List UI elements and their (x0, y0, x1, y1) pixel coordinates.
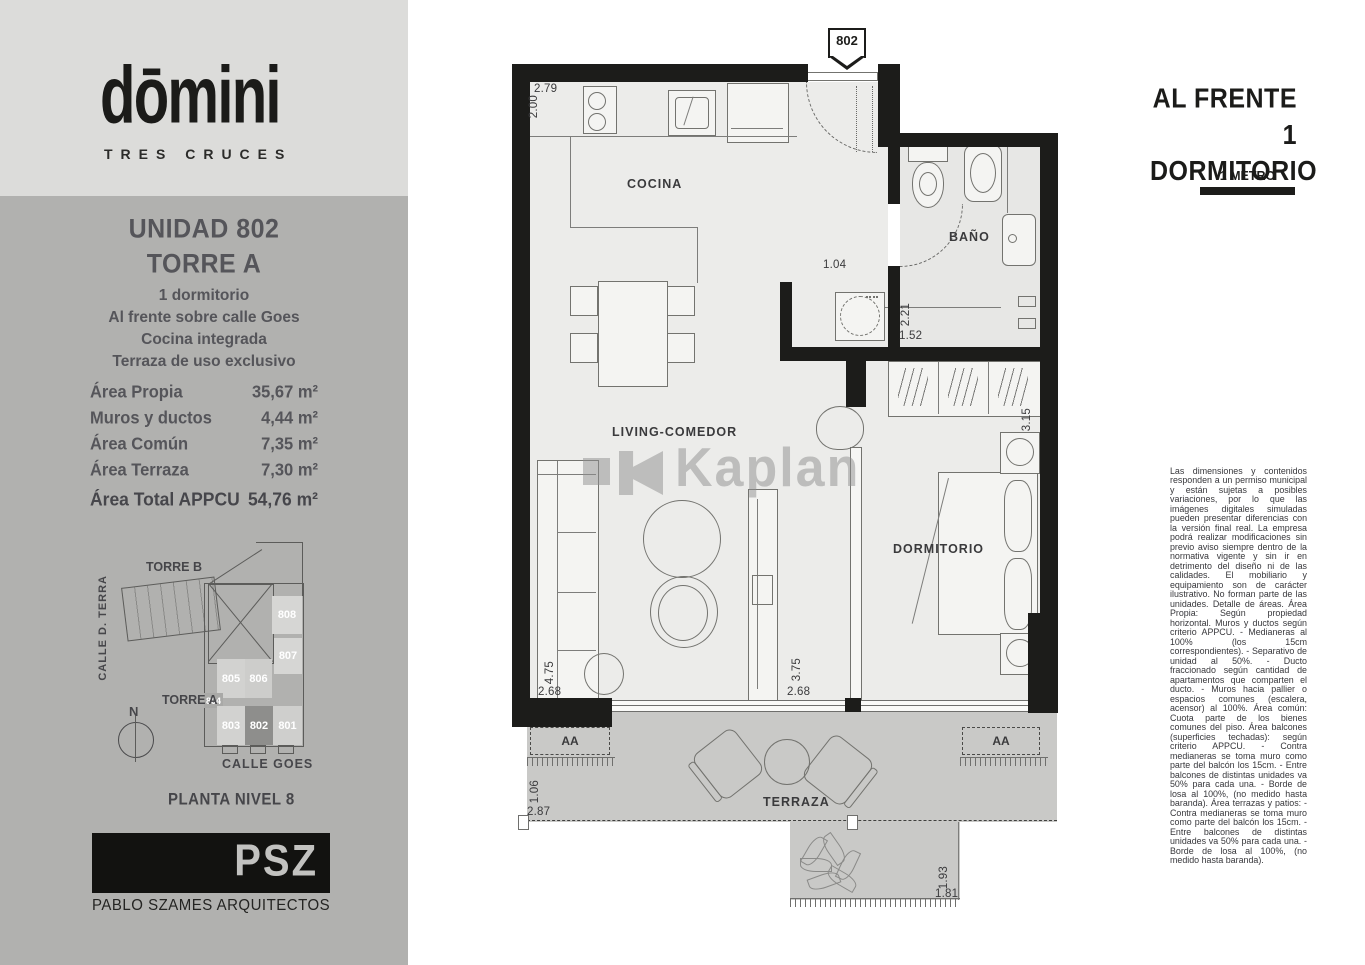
counter-line (570, 227, 698, 228)
sofa-line (558, 532, 596, 533)
room-label-terraza: TERRAZA (763, 795, 830, 810)
fridge-line (731, 128, 783, 129)
room-label-bano: BAÑO (949, 230, 990, 245)
street-bottom-label: CALLE GOES (222, 757, 313, 771)
street-left-label: CALLE D. TERRA (97, 575, 109, 681)
siteplan-caption: PLANTA NIVEL 8 (168, 790, 295, 808)
railing-hatch (960, 757, 1048, 766)
dim-label: 3.15 (1021, 408, 1033, 431)
siteplan-unit-801: 801 (273, 706, 302, 745)
unit-feature: Terraza de uso exclusivo (0, 351, 408, 373)
watermark-text: Kaplan (675, 437, 860, 500)
watermark-square-icon (583, 458, 610, 485)
wardrobe-divider (938, 362, 939, 414)
unit-subtitle: TORRE A (0, 249, 408, 280)
unit-feature: Cocina integrada (0, 329, 408, 351)
footprint-notch (222, 745, 238, 754)
entry-door-leaf (806, 72, 878, 81)
compass-needle (135, 716, 136, 762)
area-value: 7,30 m² (261, 456, 318, 483)
unit-marker-label: 802 (828, 33, 866, 48)
unit-marker-point-inner (833, 56, 861, 66)
aa-box-right: AA (962, 727, 1040, 755)
sofa-back-line (557, 461, 558, 704)
area-label: Muros y ductos (90, 404, 212, 431)
shower-door-handle (1008, 234, 1017, 243)
pillow (1004, 480, 1032, 552)
areas-table: Área Propia 35,67 m² Muros y ductos 4,44… (90, 379, 318, 512)
wardrobe-divider (988, 362, 989, 414)
wall-segment (780, 282, 792, 361)
stove-burner (588, 113, 606, 131)
area-total-row: Área Total APPCU 54,76 m² (90, 485, 318, 512)
dining-table (598, 281, 668, 387)
aa-box-left: AA (530, 727, 610, 755)
area-value: 7,35 m² (261, 430, 318, 457)
siteplan-unit-803: 803 (217, 706, 245, 745)
wall-segment (512, 64, 530, 712)
brand-logo-block: dōmini TRES CRUCES (0, 0, 408, 196)
torre-b-label: TORRE B (146, 560, 202, 574)
plumbing-fixture (1018, 318, 1036, 329)
orientation-line1: AL FRENTE (1150, 81, 1297, 117)
toilet-bowl (919, 172, 937, 196)
fridge (727, 83, 789, 143)
room-label-dormitorio: DORMITORIO (893, 542, 984, 557)
dim-label: 1.04 (823, 259, 846, 271)
washing-machine-drum (840, 296, 880, 336)
dim-label: 1.93 (938, 866, 950, 889)
wardrobe-hangers (948, 368, 978, 406)
dim-label: 2.79 (534, 83, 557, 95)
area-row: Área Terraza 7,30 m² (90, 456, 318, 483)
dim-label: 2.87 (527, 806, 550, 818)
window-strip (612, 700, 1030, 712)
sidebar: dōmini TRES CRUCES UNIDAD 802 TORRE A 1 … (0, 0, 408, 965)
watermark: Kaplan (583, 446, 913, 526)
sofa-line (558, 650, 596, 651)
vestibule-dotted-line (872, 86, 873, 152)
compass-north-label: N (129, 704, 138, 719)
dim-label: 2.68 (538, 686, 561, 698)
vestibule-dotted-line (856, 86, 857, 152)
dim-label: 4.75 (544, 661, 556, 684)
dim-label: 1.06 (529, 780, 541, 803)
wall-segment (512, 64, 808, 82)
scale-label: 1 METRO (1200, 169, 1295, 183)
dim-label: 2.21 (900, 303, 912, 326)
roof-line (256, 542, 302, 543)
roof-line (208, 549, 262, 585)
compass-icon (118, 722, 154, 758)
dim-label: 1.52 (899, 330, 922, 342)
footprint-notch (250, 745, 266, 754)
shower-partition-line (1007, 147, 1008, 213)
watermark-k-icon (619, 451, 663, 495)
dining-chair (667, 333, 695, 363)
disclaimer-text: Las dimensiones y contenidos responden a… (1170, 467, 1307, 866)
torre-a-label: TORRE A (162, 693, 218, 707)
window-pier (845, 698, 861, 712)
stove-burner (588, 92, 606, 110)
area-value: 54,76 m² (248, 485, 318, 512)
nightstand-lamp (1006, 438, 1034, 466)
unit-feature: Al frente sobre calle Goes (0, 307, 408, 329)
brand-name: dōmini (100, 48, 280, 141)
architect-logo-box: PSZ (92, 833, 330, 893)
siteplan-unit-808: 808 (272, 596, 302, 634)
wall-segment (878, 133, 1058, 147)
footprint-notch (278, 745, 294, 754)
wall-segment (512, 698, 612, 727)
sofa-line (558, 592, 596, 593)
siteplan-unit-802-highlighted: 802 (245, 706, 273, 745)
room-label-cocina: COCINA (627, 177, 682, 192)
siteplan-unit-806: 806 (245, 659, 272, 698)
wardrobe-hangers (898, 368, 928, 406)
unit-title: UNIDAD 802 (0, 214, 408, 245)
wall-segment (1028, 613, 1058, 713)
dim-label: 1.81 (935, 888, 958, 900)
counter-line (697, 227, 698, 283)
wardrobe-hangers (998, 368, 1028, 406)
shower-door (1002, 214, 1036, 266)
dim-label: 2.00 (528, 95, 540, 118)
dining-chair (570, 333, 598, 363)
railing-post (847, 815, 858, 830)
architect-logo: PSZ (234, 836, 318, 886)
wall-segment (780, 347, 1058, 361)
area-value: 4,44 m² (261, 404, 318, 431)
siteplan-unit-807: 807 (274, 638, 302, 674)
terrace-table (764, 739, 810, 785)
dining-chair (570, 286, 598, 316)
plumbing-fixture (1018, 296, 1036, 307)
dim-label: 3.75 (791, 658, 803, 681)
roof-line (302, 542, 303, 596)
dim-label: 2.68 (787, 686, 810, 698)
area-value: 35,67 m² (252, 378, 318, 405)
area-row: Área Propia 35,67 m² (90, 378, 318, 405)
area-label: Área Propia (90, 378, 183, 405)
railing-hatch (527, 757, 615, 766)
washing-machine-knobs (866, 296, 878, 301)
brand-tagline: TRES CRUCES (104, 146, 292, 162)
pouf (584, 653, 624, 695)
architect-name: PABLO SZAMES ARQUITECTOS (92, 897, 330, 915)
scale-bar (1200, 187, 1295, 195)
area-label: Área Común (90, 430, 188, 457)
bidet-bowl (970, 153, 996, 193)
toilet-tank (908, 146, 948, 162)
dining-chair (667, 286, 695, 316)
wall-segment (888, 147, 900, 204)
counter-line (570, 136, 571, 227)
area-row: Área Común 7,35 m² (90, 430, 318, 457)
tv-unit-shelf (752, 575, 773, 605)
coffee-table-inner (658, 585, 708, 641)
area-label: Área Terraza (90, 456, 189, 483)
unit-feature: 1 dormitorio (0, 285, 408, 307)
wall-segment (846, 361, 866, 407)
terrace-boundary-dashed-line (527, 820, 1057, 821)
area-label: Área Total APPCU (90, 485, 240, 512)
area-row: Muros y ductos 4,44 m² (90, 404, 318, 431)
